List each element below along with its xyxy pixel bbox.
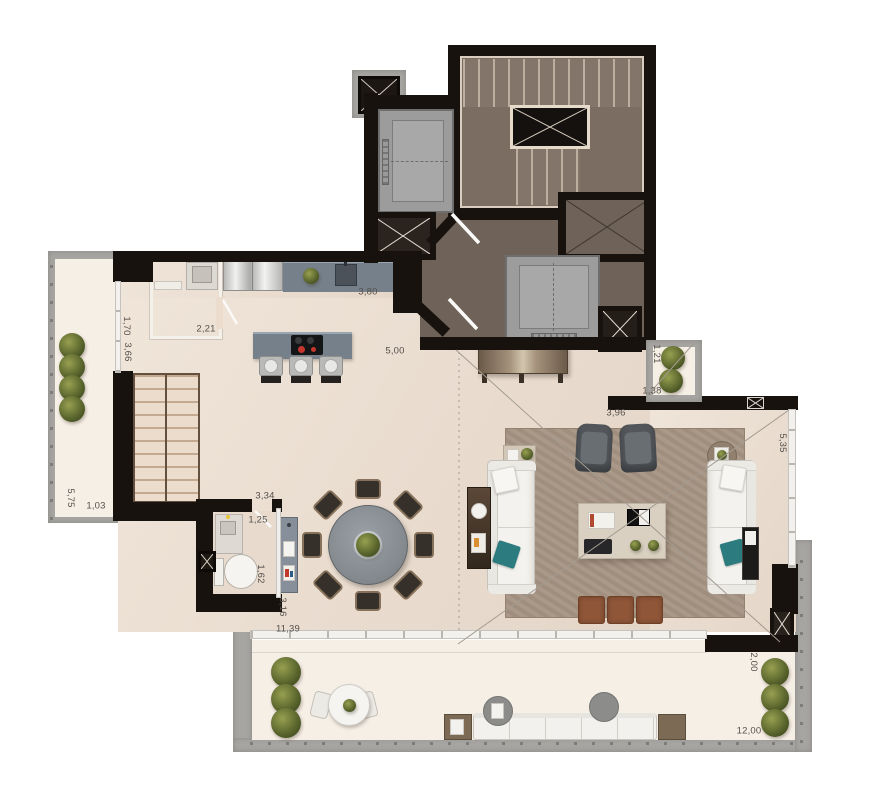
dim-label-left-terrace: 5,75 — [65, 488, 75, 507]
table-lamp — [471, 503, 487, 519]
cabinet-divider — [252, 261, 253, 291]
bathroom-duct-shaft — [198, 551, 216, 572]
dim-label-terrace-depth: 2,00 — [748, 652, 758, 671]
bar-cabinet-knob — [287, 523, 291, 527]
armchair-seat — [624, 431, 652, 464]
terrace-bottom-concrete-bottom — [233, 738, 812, 752]
art-blue-mark — [290, 571, 293, 577]
bistro-table-plant — [343, 699, 356, 712]
dim-label-bathroom-depth: 1,62 — [255, 564, 265, 583]
coffee-table-box-white — [639, 510, 649, 525]
stair-treads-upper — [463, 59, 641, 107]
sofa-cushion-split — [498, 527, 535, 528]
leather-ottoman — [578, 596, 605, 624]
sofa-armrest — [488, 584, 536, 594]
coffee-table-plant — [630, 540, 641, 551]
outdoor-round-table — [589, 692, 619, 722]
cooktop-burner — [307, 337, 314, 344]
cooktop-burner — [295, 337, 302, 344]
glass-wall-right — [788, 409, 796, 568]
cooktop-burner-red — [311, 347, 316, 352]
kitchen-refrigerator-cabinets — [223, 261, 283, 291]
terrace-bush — [271, 708, 301, 738]
stair-void-shaft — [510, 105, 590, 149]
wall-duct-marker — [747, 397, 764, 409]
outdoor-table-card — [491, 703, 504, 719]
sideboard-leg — [519, 374, 524, 383]
wall-elevator-left — [364, 93, 378, 263]
bar-stool — [319, 356, 343, 376]
terrace-right-railing — [800, 545, 803, 743]
floor-plan-canvas: 3,80 5,00 2,21 1,70 3,66 1,21 1,38 3,96 … — [0, 0, 872, 797]
service-shelf — [154, 281, 182, 290]
book-spine — [590, 514, 594, 527]
stool-seat — [294, 359, 308, 373]
pillow-white — [491, 466, 519, 494]
outdoor-table-card — [450, 719, 464, 735]
stool-base — [321, 376, 341, 383]
dining-chair — [414, 532, 434, 558]
entry-sideboard — [478, 346, 568, 374]
plant — [717, 450, 727, 460]
dim-label-bathroom-width: 1,25 — [248, 515, 267, 525]
console-table — [467, 487, 491, 569]
terrace-bush — [761, 684, 789, 712]
coffee-table-tray — [584, 539, 612, 554]
armchair — [619, 423, 657, 473]
wall-right-block — [772, 564, 798, 614]
dim-label-bottom-terrace: 12,00 — [737, 726, 762, 736]
elevator-door-mechanism — [382, 139, 389, 185]
dining-chair — [302, 532, 322, 558]
stool-base — [261, 376, 281, 383]
bar-stool — [289, 356, 313, 376]
nook-bush — [659, 369, 683, 393]
leather-ottoman — [607, 596, 634, 624]
nook-bush — [661, 346, 685, 370]
wall-left — [113, 371, 133, 521]
stool-base — [291, 376, 311, 383]
bar-stool — [259, 356, 283, 376]
tv-console-card — [745, 531, 756, 545]
stool-seat — [264, 359, 278, 373]
leather-ottoman — [636, 596, 663, 624]
terrace-bush — [761, 709, 789, 737]
service-sink — [192, 266, 212, 283]
technical-shaft-room — [558, 192, 656, 262]
terrace-bottom-railing — [250, 742, 797, 745]
art-orange-mark — [474, 538, 479, 547]
stool-seat — [324, 359, 338, 373]
bathroom-light-dot — [226, 515, 230, 519]
terrace-bush — [271, 657, 301, 687]
toilet-bowl — [224, 554, 258, 589]
dim-label-nook-width: 1,21 — [651, 344, 661, 363]
dim-label-bathroom-span: 3,34 — [255, 491, 274, 501]
elevator-main — [505, 255, 600, 347]
cooktop-burner-red — [298, 346, 305, 353]
glass-wall-bottom — [250, 630, 707, 639]
wall-top-right — [608, 396, 798, 410]
armchair — [575, 423, 613, 473]
coffee-table-plant — [648, 540, 659, 551]
wall-core-right — [644, 190, 656, 350]
dim-label-left-span: 3,66 — [122, 342, 132, 361]
terrace-paving-joint — [252, 652, 707, 653]
elevator-centerline — [386, 161, 448, 162]
kitchen-sink — [335, 264, 357, 286]
dim-label-top-right-wall: 3,96 — [606, 408, 625, 418]
sideboard-leg — [558, 374, 563, 383]
wall-elevator-top — [364, 95, 454, 109]
dim-label-dining-span: 3,16 — [277, 597, 287, 616]
bathroom-partition — [276, 508, 281, 598]
dim-label-service-height: 1,70 — [121, 316, 131, 335]
elevator-cab — [519, 265, 589, 329]
wall-bathroom-bottom — [196, 594, 282, 612]
sofa-armrest — [708, 584, 756, 594]
dim-label-service-room: 2,21 — [196, 324, 215, 334]
terrace-bush — [761, 658, 789, 686]
pillow-white — [719, 464, 747, 492]
elevator-left — [378, 109, 454, 213]
terrace-left-railing — [50, 256, 53, 520]
art-red-mark — [285, 569, 289, 577]
terrace-bush — [59, 396, 85, 422]
armchair-seat — [580, 431, 608, 464]
dining-chair — [355, 591, 381, 611]
dim-label-nook-depth: 1,38 — [642, 386, 661, 396]
dim-label-kitchen-depth: 5,00 — [385, 346, 404, 356]
service-door-gap — [216, 297, 223, 329]
outdoor-end-table — [658, 714, 686, 740]
dining-chair — [355, 479, 381, 499]
wall-core-bottom — [420, 337, 656, 350]
wall-below-stairs — [113, 502, 200, 521]
dim-label-terrace-width: 1,03 — [86, 501, 105, 511]
wall-bottom-right — [705, 635, 798, 652]
centerpiece-plant — [356, 533, 380, 557]
staircase-stringer — [165, 373, 167, 503]
elevator-centerline — [553, 263, 554, 341]
dim-label-interior-width: 11,39 — [276, 624, 300, 634]
sofa-cushion-split — [709, 527, 746, 528]
counter-plant — [303, 268, 319, 284]
dim-label-right-wall: 5,35 — [777, 433, 787, 452]
dim-label-kitchen-counter: 3,80 — [358, 287, 377, 297]
bar-cabinet-card — [283, 541, 295, 557]
bathroom-basin — [220, 521, 236, 535]
sideboard-leg — [482, 374, 487, 383]
side-table-plant — [521, 448, 533, 460]
